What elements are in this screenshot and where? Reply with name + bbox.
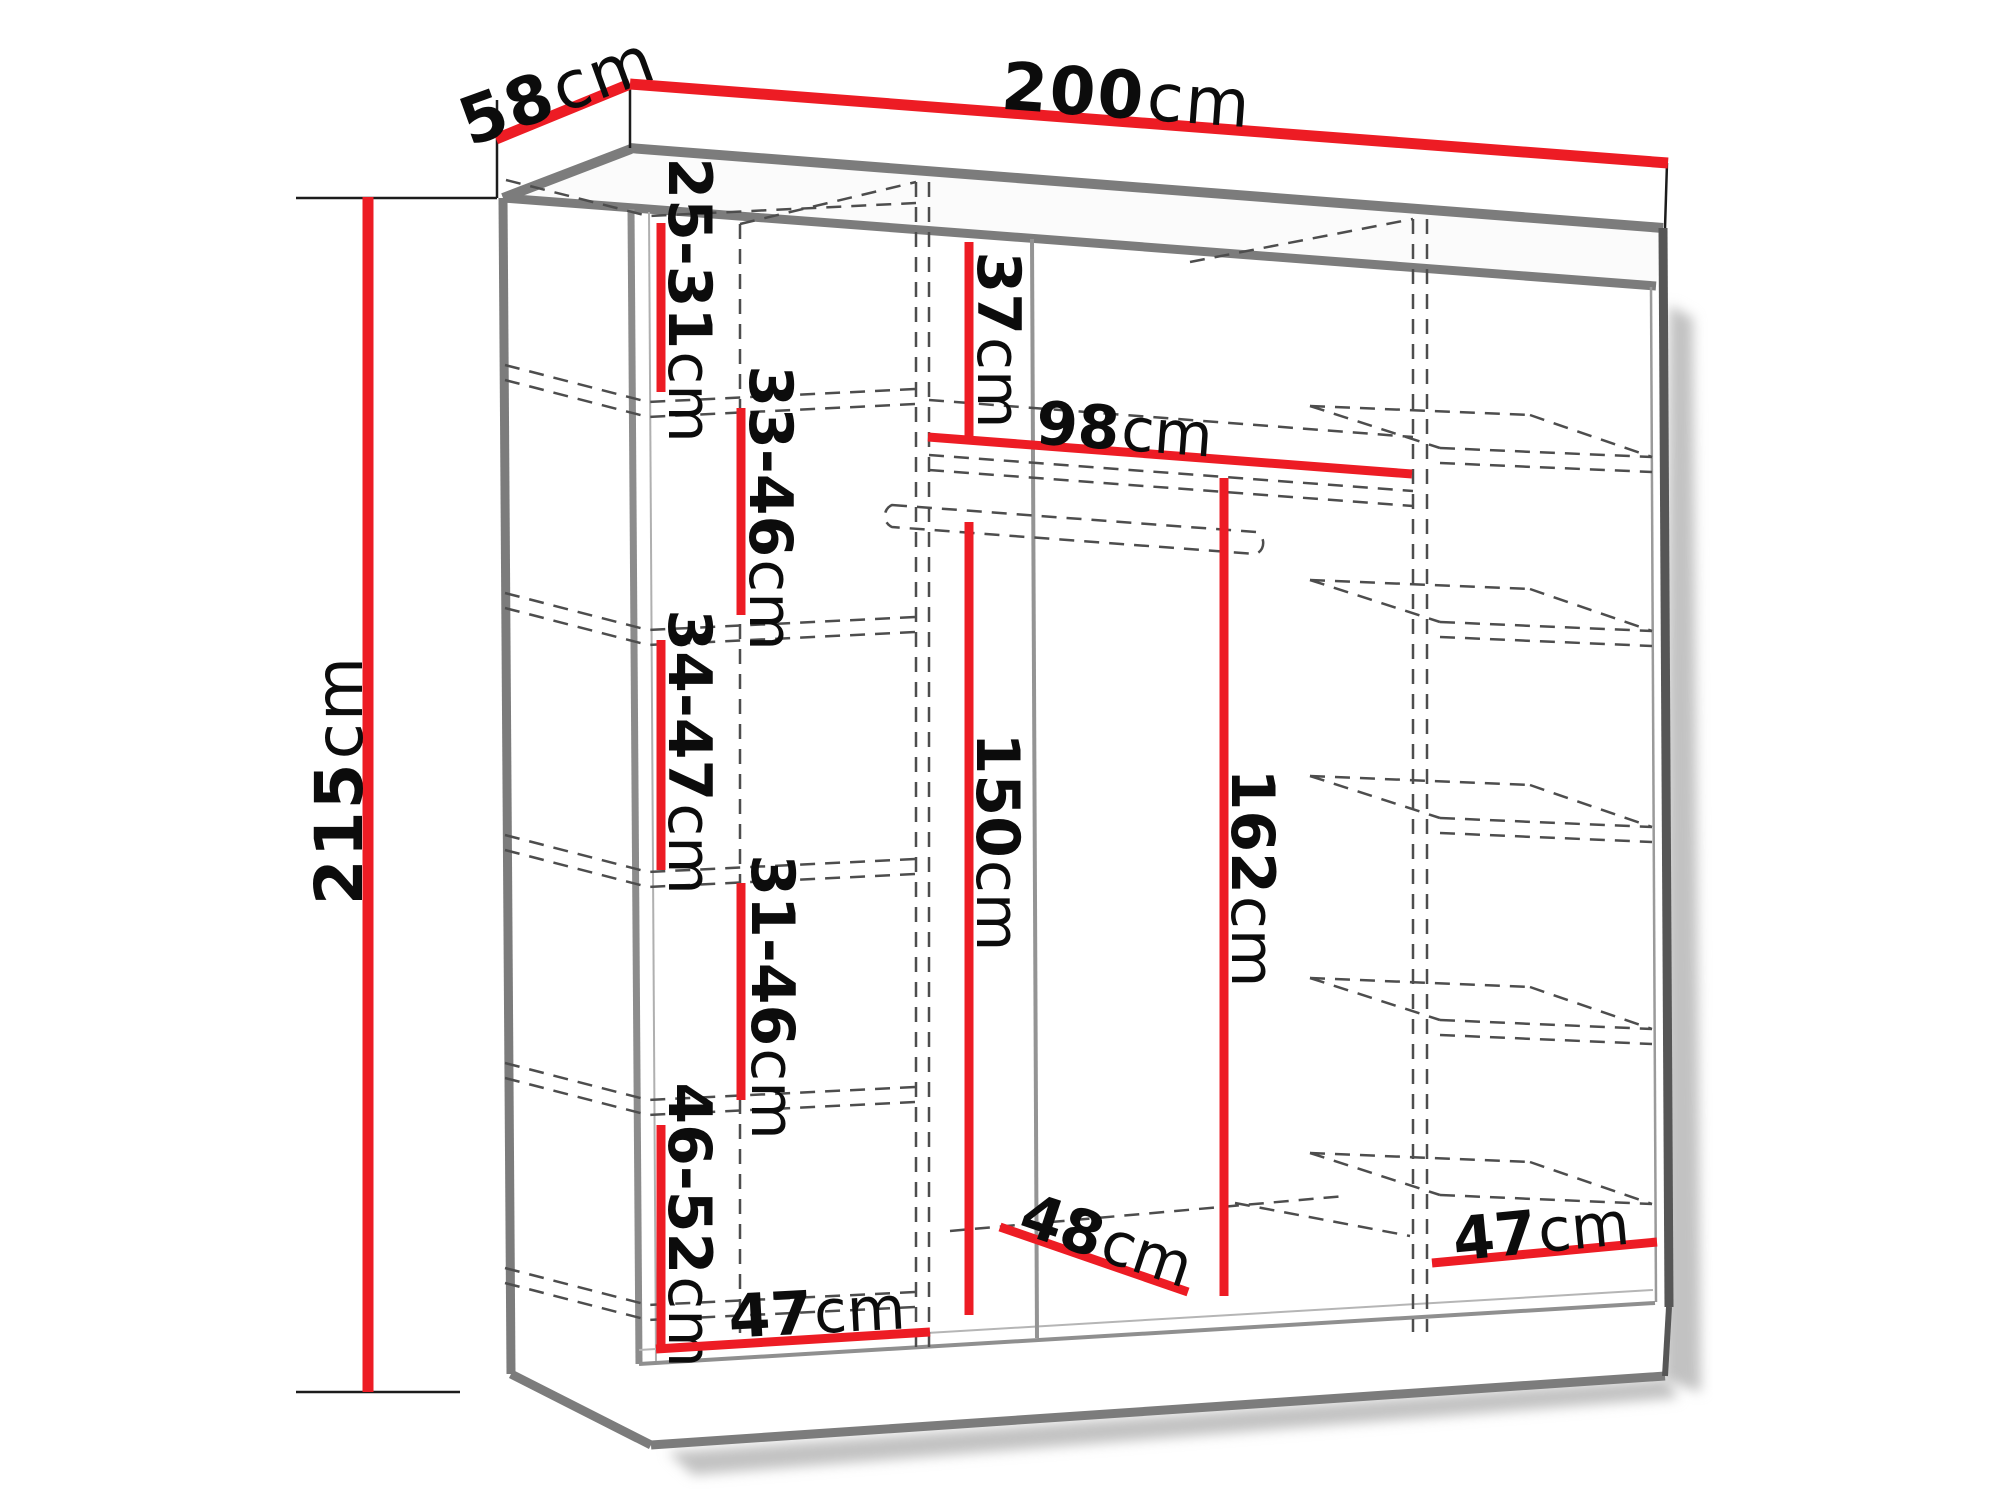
dim-left-gap1: 25-31cm — [654, 157, 724, 442]
dim-label-middle-top-gap: 37cm — [963, 252, 1033, 429]
extension-line — [1665, 163, 1667, 228]
dim-label-left-width: 47cm — [727, 1273, 907, 1352]
dim-overall-height: 215cm — [301, 197, 378, 1392]
wardrobe-dimension-diagram: 58cm 200cm 215cm 25-31cm 33-46cm 34-47cm… — [0, 0, 2000, 1500]
dim-label-left-gap2: 33-46cm — [735, 365, 805, 650]
dim-middle-top-gap: 37cm — [963, 242, 1033, 440]
dim-overall-width: 200cm — [630, 48, 1668, 163]
wardrobe-dimension-diagram-page: 58cm 200cm 215cm 25-31cm 33-46cm 34-47cm… — [0, 0, 2000, 1500]
dim-label-middle-hanging-height: 150cm — [962, 733, 1032, 952]
plinth-right-edge — [1665, 1307, 1669, 1376]
dim-label-left-gap5: 46-52cm — [654, 1082, 724, 1367]
dim-label-overall-height: 215cm — [301, 655, 378, 905]
dim-label-overall-depth: 58cm — [449, 20, 666, 162]
dim-label-left-gap3: 34-47cm — [654, 609, 724, 894]
dim-label-left-gap4: 31-46cm — [737, 854, 807, 1139]
dim-label-middle-rail-width: 98cm — [1034, 389, 1216, 472]
dim-left-gap5: 46-52cm — [654, 1082, 724, 1367]
right-outer-edge — [1663, 228, 1669, 1307]
dim-label-middle-full-height: 162cm — [1217, 769, 1287, 988]
dim-label-left-gap1: 25-31cm — [654, 157, 724, 442]
dim-left-gap2: 33-46cm — [735, 365, 805, 650]
dim-left-gap3: 34-47cm — [654, 609, 724, 894]
dim-left-gap4: 31-46cm — [737, 854, 807, 1139]
dim-overall-depth: 58cm — [449, 20, 666, 162]
dim-label-overall-width: 200cm — [999, 48, 1254, 144]
